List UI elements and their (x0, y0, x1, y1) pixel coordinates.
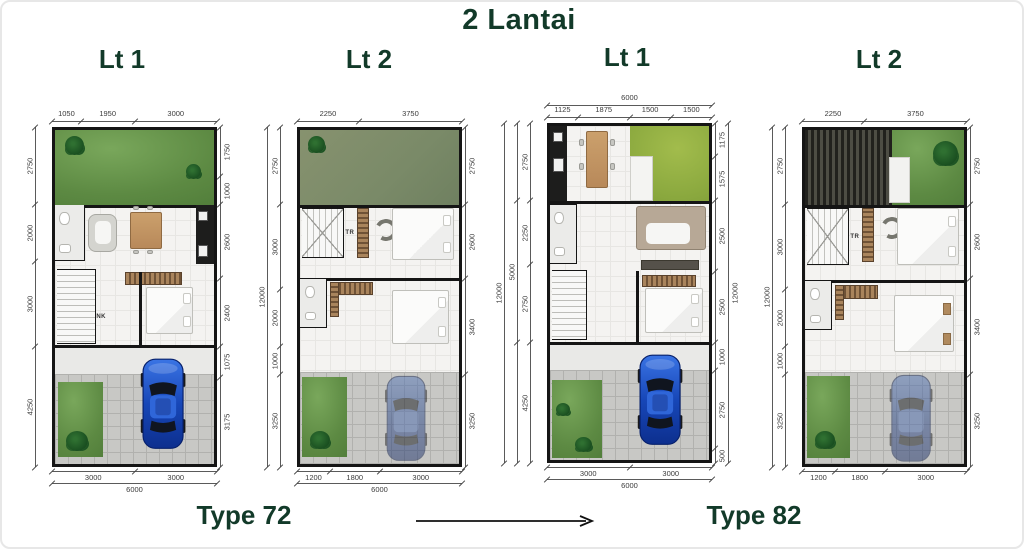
pillow (183, 316, 191, 327)
dim-label: 12000 (258, 282, 266, 312)
car-icon (637, 348, 683, 452)
car-icon (888, 374, 934, 463)
dim-label: 3250 (271, 406, 279, 436)
kitchen-sink (198, 245, 208, 257)
chair (133, 250, 139, 254)
dimension-tick (709, 102, 715, 108)
dim-label: 2000 (776, 303, 784, 333)
sofa (636, 206, 706, 249)
stair-label: TR (850, 234, 859, 240)
car-icon (383, 375, 429, 462)
dimension-line (547, 105, 712, 106)
dimension-line (267, 127, 268, 467)
plant-icon (308, 136, 325, 153)
tree-icon (933, 141, 958, 166)
floor-plan-type82-lt2: TR (802, 127, 967, 467)
dimension-line (530, 123, 531, 463)
dim-label: 4250 (521, 388, 529, 418)
dim-label: 1500 (642, 106, 659, 114)
stove (198, 211, 208, 221)
dim-label: 3750 (907, 110, 924, 118)
shrub-icon (575, 437, 592, 452)
dim-label: 2250 (521, 218, 529, 248)
dim-label: 3000 (167, 474, 184, 482)
dim-label: 3000 (271, 232, 279, 262)
dim-label: 1500 (683, 106, 700, 114)
dim-label: 2250 (320, 110, 337, 118)
wardrobe (642, 275, 696, 287)
dim-label: 1200 (810, 474, 827, 482)
dimension-chain: 12000 (728, 123, 741, 463)
dimension-tick (964, 118, 970, 124)
porch (550, 345, 709, 370)
wall (636, 271, 639, 343)
closet (889, 157, 910, 204)
tv-console (641, 260, 700, 271)
wardrobe (125, 272, 182, 285)
dim-label: 3250 (468, 406, 476, 436)
dim-label: 1800 (346, 474, 363, 482)
dimension-line (280, 127, 281, 467)
chair (610, 139, 615, 146)
dim-label: 3000 (412, 474, 429, 482)
dim-label: 2750 (521, 147, 529, 177)
floor-plan-sheet: 2 Lantai Lt 1 Lt 2 Lt 1 Lt 2 (0, 0, 1024, 549)
dim-label: 1200 (305, 474, 322, 482)
dimension-line (517, 123, 518, 463)
dim-label: 3000 (85, 474, 102, 482)
wardrobe (330, 282, 339, 317)
plan-header-type72-lt2: Lt 2 (314, 44, 424, 75)
dimension-chain: 27503000200010003250 (773, 127, 786, 467)
dimension-line (715, 123, 716, 463)
plan-drawing: TR (297, 127, 462, 467)
dimension-line (297, 483, 462, 484)
dim-label: 12000 (731, 278, 739, 308)
dim-label: 6000 (621, 482, 638, 490)
bed (645, 288, 702, 333)
dim-label: 1800 (851, 474, 868, 482)
dim-label: 2750 (26, 151, 34, 181)
dim-label: 1075 (223, 347, 231, 377)
dimension-chain: 175010002600240010753175 (220, 127, 233, 467)
plan-drawing: NK (52, 127, 217, 467)
wardrobe (862, 208, 874, 261)
dimension-chain: 117515752500250010002750500 (715, 123, 728, 463)
wall (139, 272, 142, 345)
porch (55, 348, 214, 375)
dim-label: 6000 (126, 486, 143, 494)
stairs (807, 208, 848, 265)
floor-plan-type82-lt1: 1125187515001500600030003000600027502250… (547, 123, 712, 463)
pillow (438, 297, 446, 308)
dim-label: 2750 (973, 151, 981, 181)
dim-label: 1000 (271, 346, 279, 376)
dim-label: 12000 (763, 282, 771, 312)
dim-label: 1750 (223, 137, 231, 167)
dining-table (586, 131, 608, 188)
toilet (59, 212, 70, 225)
pillow (691, 294, 699, 304)
dimension-line (504, 123, 505, 463)
dim-label: 6000 (371, 486, 388, 494)
dimension-chain: 27503000200010003250 (268, 127, 281, 467)
shrub-icon (815, 431, 835, 449)
dim-label: 2750 (718, 395, 726, 425)
page-title: 2 Lantai (364, 4, 674, 37)
dim-label: 1000 (223, 176, 231, 206)
dim-label: 1000 (718, 342, 726, 372)
stair-label: NK (96, 314, 106, 320)
dim-label: 1175 (718, 125, 726, 155)
floor-plan-type72-lt1: NK (52, 127, 217, 467)
dimension-line (35, 127, 36, 467)
dimension-line (52, 483, 217, 484)
kitchen-sink (553, 158, 564, 172)
dim-label: 3400 (973, 312, 981, 342)
dim-label: 1575 (718, 164, 726, 194)
dimension-line (728, 123, 729, 463)
sink (810, 315, 821, 323)
dim-label: 2500 (718, 221, 726, 251)
dimension-line (802, 121, 967, 122)
pillow (948, 216, 956, 227)
chair (579, 163, 584, 170)
car-icon (140, 352, 186, 456)
dimension-chain: 1125187515001500 (547, 106, 712, 118)
stairs (57, 269, 95, 344)
chair (133, 206, 139, 210)
dim-label: 2000 (26, 218, 34, 248)
floor-plan-type72-lt2: TR (297, 127, 462, 467)
dim-label: 3000 (26, 289, 34, 319)
dim-label: 2600 (223, 227, 231, 257)
dining-table (130, 212, 162, 249)
kitchen-counter (196, 205, 214, 263)
dimension-chain: 2750260034003250 (970, 127, 983, 467)
kitchen-counter (550, 126, 567, 201)
dim-label: 3000 (776, 232, 784, 262)
dim-label: 1050 (58, 110, 75, 118)
dim-label: 3000 (580, 470, 597, 478)
dimension-chain: 22503750 (297, 110, 462, 122)
sofa (88, 214, 117, 252)
shrub-icon (556, 403, 570, 416)
dim-label: 12000 (495, 278, 503, 308)
dim-label: 1875 (595, 106, 612, 114)
garden-area (55, 130, 214, 205)
dimension-chain: 2750260034003250 (465, 127, 478, 467)
dimension-line (547, 479, 712, 480)
garden-area (552, 380, 601, 458)
pillow (443, 215, 451, 226)
plan-drawing: TR (802, 127, 967, 467)
dim-label: 3000 (167, 110, 184, 118)
dimension-tick (459, 118, 465, 124)
wardrobe (357, 208, 369, 258)
dimension-line (297, 121, 462, 122)
dim-label: 1125 (554, 106, 570, 114)
sink (554, 247, 565, 256)
caption-type72: Type 72 (159, 500, 329, 531)
dimension-chain: 6000 (547, 94, 712, 106)
pillow (438, 326, 446, 337)
stove (553, 132, 563, 142)
pillow (943, 303, 951, 315)
dimension-chain: 5000 (505, 123, 518, 463)
dim-label: 2400 (223, 298, 231, 328)
dimension-line (970, 127, 971, 467)
dimension-chain: 30003000 (547, 467, 712, 479)
bed (894, 295, 954, 352)
dim-label: 1950 (99, 110, 116, 118)
sink (305, 312, 316, 320)
stairs (302, 208, 343, 258)
sink (59, 244, 71, 253)
closet (630, 156, 654, 201)
toilet (305, 286, 315, 298)
dimension-chain: 6000 (297, 483, 462, 495)
plan-drawing (547, 123, 712, 463)
dim-label: 1000 (776, 346, 784, 376)
dimension-tick (214, 118, 220, 124)
dimension-chain: 12000 (492, 123, 505, 463)
dim-label: 2750 (468, 151, 476, 181)
dimension-chain: 120018003000 (297, 471, 462, 483)
dimension-chain: 6000 (547, 479, 712, 491)
sofa-table (646, 223, 689, 245)
wardrobe (835, 285, 844, 320)
dimension-line (465, 127, 466, 467)
pillow (948, 246, 956, 257)
plan-header-type72-lt1: Lt 1 (67, 44, 177, 75)
dimension-chain: 22503750 (802, 110, 967, 122)
bathroom (55, 205, 85, 260)
pillow (943, 333, 951, 345)
dim-label: 2600 (468, 227, 476, 257)
chair (610, 163, 615, 170)
sofa-seat (95, 221, 111, 244)
dim-label: 2750 (776, 151, 784, 181)
dim-label: 2750 (521, 289, 529, 319)
dimension-line (220, 127, 221, 467)
pillow (443, 242, 451, 253)
dim-label: 4250 (26, 392, 34, 422)
dim-label: 5000 (508, 257, 516, 287)
bed (897, 208, 959, 265)
bed (392, 208, 454, 260)
dim-label: 2750 (271, 151, 279, 181)
pillow (691, 317, 699, 327)
dimension-line (772, 127, 773, 467)
dim-label: 6000 (621, 94, 638, 102)
garden-area (302, 377, 347, 457)
garden-area (58, 382, 103, 457)
roof-garden (300, 130, 459, 205)
stair-label: TR (345, 230, 354, 236)
shrub-icon (66, 431, 88, 451)
dim-label: 3250 (776, 406, 784, 436)
dimension-chain: 105019503000 (52, 110, 217, 122)
dim-label: 3175 (223, 407, 231, 437)
garden-area (807, 376, 850, 458)
palm-tree-icon (186, 164, 201, 179)
bed (146, 287, 194, 334)
dim-label: 2000 (271, 303, 279, 333)
dim-label: 2600 (973, 227, 981, 257)
toilet (554, 212, 564, 224)
bathroom (300, 278, 327, 328)
dim-label: 2250 (825, 110, 842, 118)
chair (147, 206, 153, 210)
bathroom (550, 204, 577, 264)
stairs (552, 270, 587, 340)
toilet (810, 288, 820, 300)
palm-tree-icon (65, 136, 84, 155)
dimension-line (785, 127, 786, 467)
dim-label: 3000 (917, 474, 934, 482)
dimension-chain: 120018003000 (802, 471, 967, 483)
dimension-chain: 2750225027504250 (518, 123, 531, 463)
dimension-chain: 2750200030004250 (23, 127, 36, 467)
dimension-chain: 30003000 (52, 471, 217, 483)
bathroom (805, 280, 832, 330)
dim-label: 3250 (973, 406, 981, 436)
dimension-chain: 12000 (760, 127, 773, 467)
plan-header-type82-lt1: Lt 1 (572, 42, 682, 73)
bed (392, 290, 449, 343)
dim-label: 2500 (718, 292, 726, 322)
chair (579, 139, 584, 146)
dimension-chain: 12000 (255, 127, 268, 467)
shrub-icon (310, 431, 330, 449)
dimension-chain: 6000 (52, 483, 217, 495)
dimension-tick (709, 114, 715, 120)
caption-type82: Type 82 (669, 500, 839, 531)
dim-label: 3400 (468, 312, 476, 342)
dim-label: 3000 (662, 470, 679, 478)
dim-label: 3750 (402, 110, 419, 118)
roof-deck (805, 130, 892, 205)
transition-arrow-icon (414, 514, 596, 528)
pillow (183, 293, 191, 304)
plan-header-type82-lt2: Lt 2 (824, 44, 934, 75)
chair (147, 250, 153, 254)
